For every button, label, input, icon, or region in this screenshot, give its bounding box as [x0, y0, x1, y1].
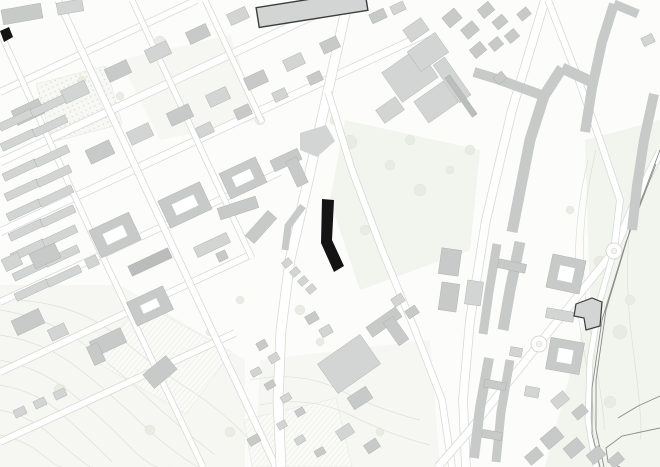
building — [438, 282, 460, 312]
building-courtyard — [557, 265, 575, 283]
tree — [295, 305, 305, 315]
site-plan-map — [0, 0, 660, 467]
tree — [316, 338, 324, 346]
tree — [604, 396, 616, 408]
tree — [116, 92, 124, 100]
building — [438, 248, 461, 277]
tree — [625, 295, 635, 305]
roundabout-island — [611, 248, 617, 254]
tree — [225, 427, 235, 437]
building-courtyard — [556, 348, 573, 364]
tree — [446, 166, 454, 174]
site-plan-svg — [0, 0, 660, 467]
tree — [360, 225, 370, 235]
tree — [385, 160, 395, 170]
building — [464, 280, 483, 306]
tree — [405, 135, 415, 145]
building — [524, 386, 540, 398]
tree — [414, 184, 426, 196]
building — [509, 347, 522, 358]
tree — [465, 145, 475, 155]
roundabout-island — [536, 341, 542, 347]
tree — [145, 425, 155, 435]
tree — [236, 296, 244, 304]
tree — [566, 206, 574, 214]
tree — [613, 325, 627, 339]
tree — [376, 428, 384, 436]
